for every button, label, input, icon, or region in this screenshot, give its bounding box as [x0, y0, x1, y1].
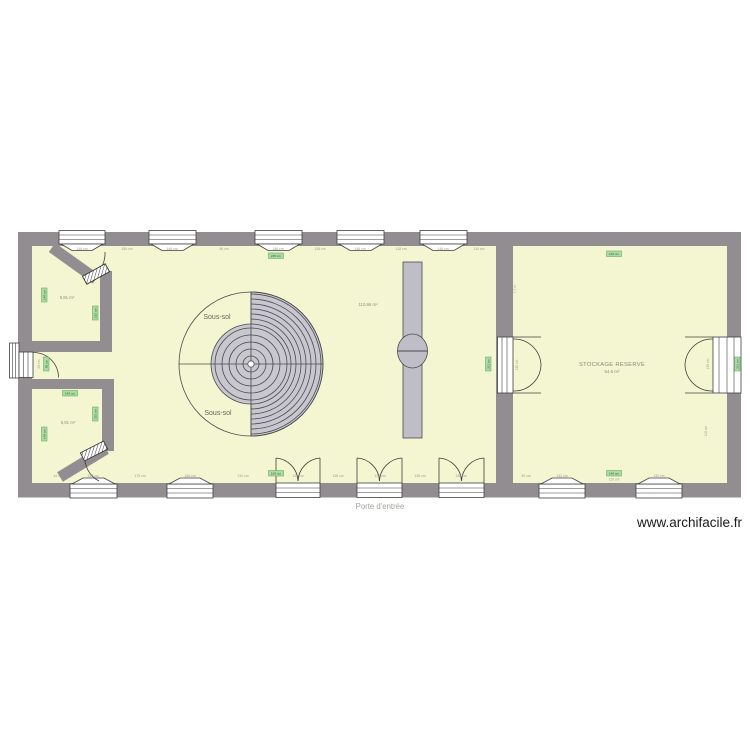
window — [167, 478, 213, 498]
wall-room2-top — [32, 379, 114, 389]
dimension-chip[interactable]: 232 cm — [93, 407, 99, 421]
dim-label: 7,7 m — [513, 285, 517, 293]
room2-area: 5,91 m² — [61, 420, 76, 425]
storage-room-area: 54,6 m² — [605, 369, 620, 374]
dim-label: 85 cm — [37, 359, 41, 368]
chip-label: 311 cm — [486, 359, 490, 369]
wall-room2-right — [102, 379, 114, 451]
dim-label: 146 cm — [354, 247, 365, 251]
dim-label: 110 cm — [474, 247, 485, 251]
chip-label: 140 cm — [609, 252, 620, 256]
dimension-chip[interactable]: 85 cm — [44, 357, 50, 371]
dim-label: 175 cm — [134, 474, 145, 478]
dim-label: 132 cm — [653, 474, 664, 478]
dim-label: 146 cm — [437, 247, 448, 251]
dim-label: 98 cm — [219, 247, 228, 251]
dimension-chip[interactable]: 232 cm — [93, 306, 99, 320]
window — [539, 478, 585, 498]
dim-label: 138 cm — [515, 359, 519, 370]
dim-label: 146 cm — [166, 247, 177, 251]
dimension-chip[interactable]: 311 cm — [735, 357, 741, 371]
chip-label: 148 cm — [42, 290, 46, 301]
chip-label: 311 cm — [735, 359, 739, 369]
storage-room-name: STOCKAGE RESERVE — [579, 362, 645, 368]
window — [70, 478, 117, 498]
dim-label: 146 cm — [87, 474, 98, 478]
chip-label: 232 cm — [93, 409, 97, 420]
chip-label: 140 cm — [65, 392, 76, 396]
dimension-chip[interactable]: 140 cm — [63, 391, 78, 397]
floor-plan-canvas: 148 cm 232 cm 85 cm 140 cm 232 cm 148 cm… — [0, 0, 750, 750]
dim-label: 126 cm — [314, 247, 325, 251]
dimension-chip[interactable]: 148 cm — [42, 427, 48, 441]
dim-label: 138 cm — [374, 474, 385, 478]
dimension-chip[interactable]: 140 cm — [607, 251, 622, 257]
dim-label: 44 cm — [53, 474, 62, 478]
dimension-chip[interactable]: 148 cm — [42, 288, 48, 302]
stair-center-post — [248, 361, 254, 367]
chip-label: 140 cm — [609, 472, 620, 476]
chip-label: 235 cm — [271, 254, 282, 258]
dim-label: 210 cm — [237, 474, 248, 478]
dim-label: 138 cm — [292, 474, 303, 478]
dim-label: 146 cm — [184, 474, 195, 478]
wall-room1-right — [100, 271, 112, 352]
dim-label: 110 cm — [609, 478, 620, 482]
chip-label: 232 cm — [93, 308, 97, 319]
chip-label: 105 cm — [271, 472, 282, 476]
sous-sol-label-bottom: Sous-sol — [204, 410, 232, 417]
dim-label: 128 cm — [332, 474, 343, 478]
chip-label: 85 cm — [44, 359, 48, 368]
dimension-chip[interactable]: 311 cm — [486, 357, 492, 371]
entrance-label: Porte d'entrée — [356, 502, 405, 511]
dim-label: 110 cm — [704, 425, 708, 436]
wall-room1-bottom — [32, 341, 112, 352]
window — [636, 478, 682, 498]
dim-label: 150 cm — [121, 247, 132, 251]
dimension-chip[interactable]: 235 cm — [269, 253, 284, 259]
chip-label: 148 cm — [42, 429, 46, 440]
dim-label: 138 cm — [706, 358, 710, 369]
watermark: www.archifacile.fr — [636, 515, 743, 530]
dim-label: 146 cm — [272, 247, 283, 251]
main-room-area: 110,96 m² — [358, 302, 378, 307]
dim-label: 146 cm — [76, 247, 87, 251]
dimension-chip[interactable]: 105 cm — [269, 471, 284, 477]
dimension-chip[interactable]: 140 cm — [607, 471, 622, 477]
room1-area: 5,91 m² — [60, 295, 75, 300]
dim-label: 132 cm — [556, 474, 567, 478]
sous-sol-label-top: Sous-sol — [203, 314, 231, 321]
dim-label: 138 cm — [455, 474, 466, 478]
dim-label: 128 cm — [395, 247, 406, 251]
dim-label: 126 cm — [414, 474, 425, 478]
dim-label: 90 cm — [521, 474, 530, 478]
